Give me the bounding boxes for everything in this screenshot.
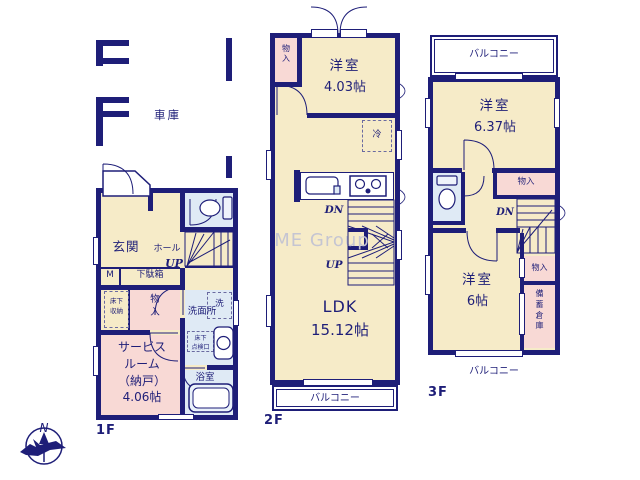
wall — [226, 156, 232, 178]
floor3-label: 3F — [428, 385, 458, 402]
hall-label: ホール — [146, 244, 188, 256]
wall — [148, 193, 153, 211]
casement-icon — [560, 206, 565, 220]
wall — [96, 97, 129, 103]
window — [266, 150, 272, 180]
window — [93, 346, 99, 376]
room1-3f-size: 6.37帖 — [455, 120, 535, 137]
compass-icon: N — [20, 421, 66, 464]
ldk-label: LDK — [295, 297, 385, 318]
wall — [496, 228, 520, 233]
shoebox-label: 下駄箱 — [121, 270, 179, 282]
closet-1f-label: 物 入 — [130, 294, 180, 320]
closet-2f-label: 物 入 — [275, 44, 297, 65]
balcony-door — [455, 73, 523, 80]
bird-silhouette — [20, 439, 66, 456]
wall — [433, 228, 466, 233]
service-room-label: サービス ルーム （納戸） 4.06帖 — [101, 339, 183, 406]
garage-label: 車庫 — [140, 108, 195, 123]
underfloor-hatch-label: 床下 点検口 — [187, 334, 214, 352]
wall — [207, 365, 233, 370]
window — [425, 255, 431, 295]
wall — [226, 38, 232, 81]
ldk-size: 15.12帖 — [295, 321, 385, 341]
window — [93, 237, 99, 265]
closet2-3f-label: 物入 — [524, 263, 555, 273]
wall — [101, 285, 180, 290]
wall — [96, 97, 103, 146]
wall — [185, 266, 233, 268]
floor1-label: 1F — [96, 423, 126, 440]
wall — [461, 172, 465, 223]
wall — [497, 195, 555, 199]
window — [158, 414, 194, 420]
balcony-3f-top-label: バルコニー — [430, 48, 558, 61]
room1-2f-label: 洋室 — [300, 58, 390, 76]
wall — [183, 227, 233, 232]
wall — [433, 221, 465, 225]
window — [396, 130, 402, 160]
wall — [307, 113, 395, 118]
room2-3f-label: 洋室 — [440, 272, 515, 290]
window — [554, 98, 560, 128]
underfloor-storage-label: 床下 収納 — [104, 296, 129, 317]
balcony-door — [455, 350, 523, 357]
kitchen-counter — [300, 172, 394, 200]
floor-plan: 車庫 玄関 ホール UP M 下駄箱 床下 収納 物 入 サービス ルーム （納… — [0, 0, 640, 480]
fridge-label: 冷 — [362, 130, 392, 142]
room-toilet-1f — [185, 193, 233, 227]
wall — [101, 330, 150, 335]
dn-2f-label: DN — [322, 204, 346, 218]
window — [425, 98, 431, 128]
wall — [96, 40, 129, 46]
bathroom-label: 浴室 — [188, 372, 222, 384]
wall — [524, 281, 555, 285]
wall — [180, 268, 185, 290]
wall — [433, 168, 462, 173]
watermark: ME Group — [262, 230, 382, 251]
compass-north-label: N — [40, 421, 49, 435]
wall — [275, 82, 302, 87]
balcony-3f-bottom-label: バルコニー — [430, 365, 558, 378]
wall — [180, 188, 185, 232]
closet1-3f-label: 物入 — [497, 177, 555, 188]
balcony-2f-label: バルコニー — [272, 392, 398, 405]
wall — [96, 111, 129, 117]
window — [266, 295, 272, 327]
dn-3f-label: DN — [492, 206, 518, 219]
room1-2f-size: 4.03帖 — [300, 80, 390, 97]
room2-3f-size: 6帖 — [440, 294, 515, 311]
wall — [492, 168, 555, 173]
meter-label: M — [101, 270, 119, 282]
floor2-label: 2F — [264, 413, 294, 430]
up-2f-label: UP — [322, 259, 346, 273]
storage-3f-label: 備 蓄 倉 庫 — [524, 289, 555, 332]
door-leaf — [311, 29, 338, 38]
room-toilet-3f — [433, 172, 462, 223]
window — [396, 230, 402, 260]
wall — [96, 58, 129, 64]
balcony-door — [303, 379, 373, 386]
door-leaf — [340, 29, 367, 38]
room1-3f-label: 洋室 — [455, 98, 535, 116]
window — [233, 300, 239, 326]
washroom-label: 洗面所 — [183, 306, 221, 318]
genkan-label: 玄関 — [101, 239, 151, 255]
